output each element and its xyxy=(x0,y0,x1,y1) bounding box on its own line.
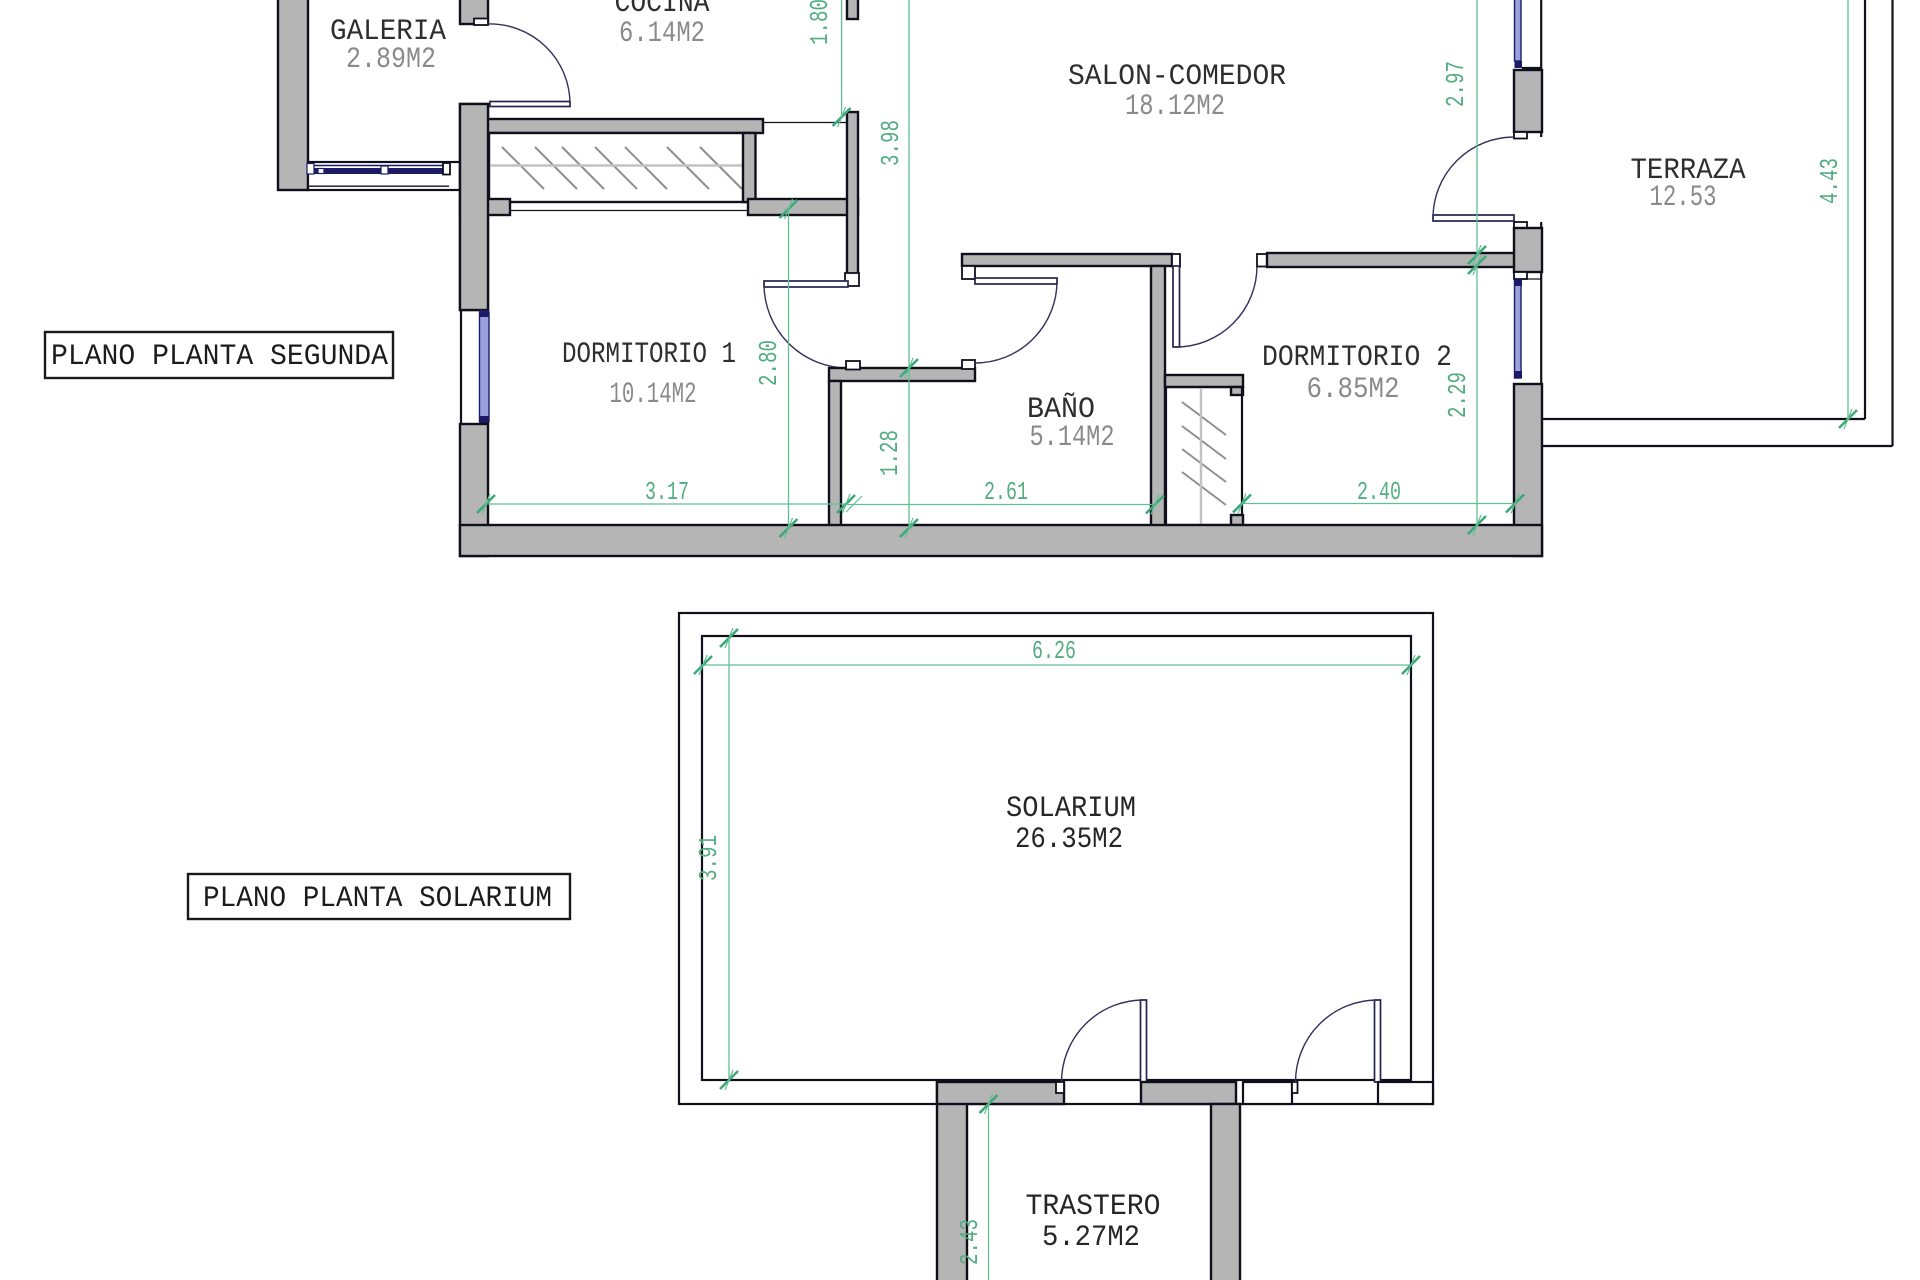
svg-text:2.80: 2.80 xyxy=(754,340,784,386)
svg-text:6.85M2: 6.85M2 xyxy=(1307,373,1400,407)
svg-text:3.17: 3.17 xyxy=(645,477,689,507)
svg-text:SOLARIUM: SOLARIUM xyxy=(1006,792,1136,826)
svg-text:PLANO PLANTA SEGUNDA: PLANO PLANTA SEGUNDA xyxy=(51,340,388,374)
svg-text:2.43: 2.43 xyxy=(955,1219,985,1265)
svg-text:4.43: 4.43 xyxy=(1815,158,1845,204)
svg-text:DORMITORIO 2: DORMITORIO 2 xyxy=(1262,341,1452,375)
svg-text:18.12M2: 18.12M2 xyxy=(1125,90,1225,124)
svg-text:1.80: 1.80 xyxy=(805,0,835,45)
svg-text:2.29: 2.29 xyxy=(1443,372,1473,418)
svg-text:2.40: 2.40 xyxy=(1357,477,1401,507)
svg-text:TRASTERO: TRASTERO xyxy=(1026,1190,1161,1224)
svg-text:DORMITORIO 1: DORMITORIO 1 xyxy=(562,338,736,372)
svg-text:12.53: 12.53 xyxy=(1650,181,1717,215)
svg-text:3.98: 3.98 xyxy=(876,120,906,166)
svg-text:5.14M2: 5.14M2 xyxy=(1030,421,1115,455)
svg-text:2.97: 2.97 xyxy=(1441,61,1471,107)
svg-text:3.91: 3.91 xyxy=(694,835,724,881)
svg-text:6.14M2: 6.14M2 xyxy=(619,17,705,51)
svg-text:PLANO PLANTA SOLARIUM: PLANO PLANTA SOLARIUM xyxy=(203,882,552,916)
svg-text:26.35M2: 26.35M2 xyxy=(1015,823,1123,857)
svg-text:1.28: 1.28 xyxy=(875,430,905,476)
svg-text:2.89M2: 2.89M2 xyxy=(346,43,436,77)
svg-text:2.61: 2.61 xyxy=(984,477,1028,507)
svg-text:6.26: 6.26 xyxy=(1032,636,1076,666)
svg-text:SALON-COMEDOR: SALON-COMEDOR xyxy=(1068,60,1286,94)
svg-text:10.14M2: 10.14M2 xyxy=(610,378,697,412)
svg-text:5.27M2: 5.27M2 xyxy=(1042,1221,1140,1255)
